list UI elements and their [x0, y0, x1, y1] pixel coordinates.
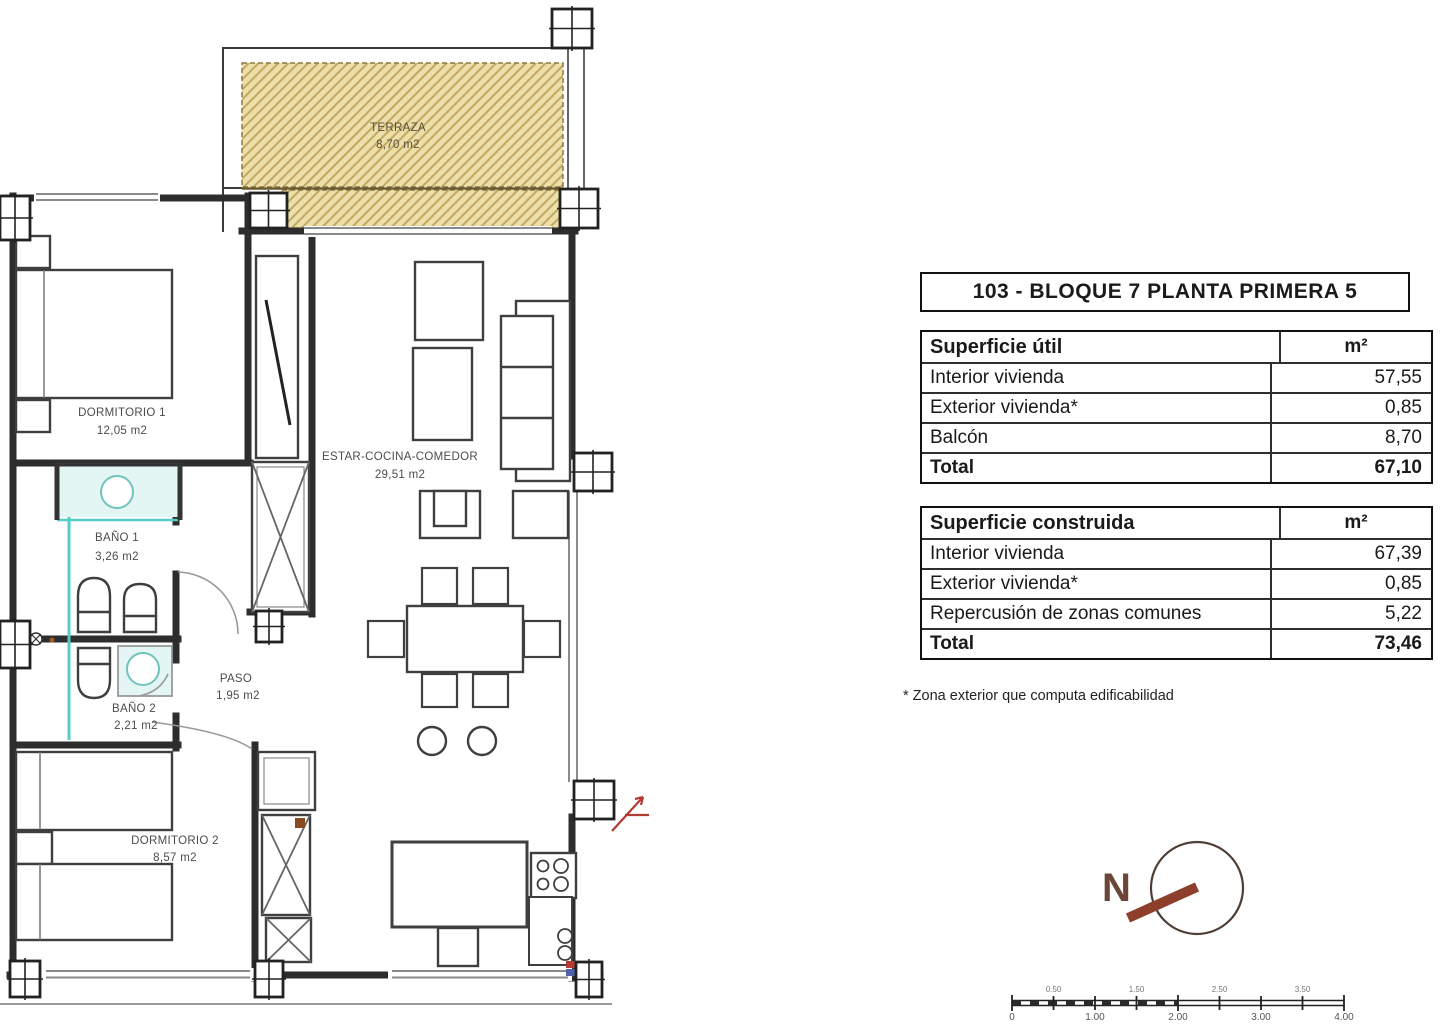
page: TERRAZA 8,70 m2 DORMITORIO 1 12,05 m2 BA…: [0, 0, 1440, 1024]
table-header-row: Superficie útil m²: [922, 332, 1431, 362]
meter-mark: [566, 969, 575, 976]
table-superficie-util: Superficie útil m² Interior vivienda 57,…: [920, 330, 1433, 484]
table-unit-header: m²: [1279, 508, 1431, 538]
room-area: 8,57 m2: [153, 852, 197, 864]
scale-label: 2.50: [1212, 985, 1228, 994]
north-arrow: N: [1102, 842, 1243, 934]
room-label: TERRAZA: [370, 122, 426, 134]
room-area: 29,51 m2: [375, 469, 425, 481]
table-total-row: Total 67,10: [922, 452, 1431, 482]
tv-unit: [415, 262, 483, 340]
table-row: Exterior vivienda* 0,85: [922, 392, 1431, 422]
bed: [16, 864, 172, 940]
table-unit-header: m²: [1279, 332, 1431, 362]
table-row: Repercusión de zonas comunes 5,22: [922, 598, 1431, 628]
shower: [57, 464, 180, 520]
room-label: DORMITORIO 1: [78, 407, 166, 419]
toilet: [78, 578, 110, 632]
plan-title: 103 - BLOQUE 7 PLANTA PRIMERA 5: [920, 272, 1410, 312]
table-row: Exterior vivienda* 0,85: [922, 568, 1431, 598]
row-label: Interior vivienda: [922, 540, 1270, 568]
table-row: Interior vivienda 57,55: [922, 362, 1431, 392]
column-icon: [571, 450, 615, 494]
total-value: 67,10: [1270, 454, 1431, 482]
room-label: PASO: [220, 673, 252, 685]
stove: [531, 853, 576, 898]
room-label: DORMITORIO 2: [131, 835, 219, 847]
nightstand: [16, 832, 52, 864]
armchair: [513, 491, 568, 538]
wardrobe: [258, 752, 315, 962]
total-label: Total: [922, 630, 1270, 658]
bed: [16, 270, 172, 398]
row-label: Interior vivienda: [922, 364, 1270, 392]
column-icon: [573, 959, 605, 1000]
row-label: Exterior vivienda*: [922, 570, 1270, 598]
row-label: Exterior vivienda*: [922, 394, 1270, 422]
row-value: 0,85: [1270, 570, 1431, 598]
scale-label: 2.00: [1168, 1012, 1188, 1023]
furniture: [16, 236, 576, 966]
total-label: Total: [922, 454, 1270, 482]
scale-label: 3.50: [1295, 985, 1311, 994]
row-label: Repercusión de zonas comunes: [922, 600, 1270, 628]
column-icon: [252, 958, 286, 1000]
closet: [252, 462, 309, 612]
row-value: 8,70: [1270, 424, 1431, 452]
room-area: 12,05 m2: [97, 425, 147, 437]
column-icon: [0, 618, 33, 671]
valve-icon: [30, 633, 55, 645]
column-icon: [7, 958, 43, 1000]
row-value: 67,39: [1270, 540, 1431, 568]
table-header-label: Superficie útil: [922, 332, 1279, 362]
electrical-symbol: [612, 797, 649, 831]
sink: [529, 897, 572, 965]
column-icon: [549, 6, 595, 51]
row-value: 5,22: [1270, 600, 1431, 628]
tall-cabinet: [256, 256, 298, 458]
column-icon: [557, 186, 601, 231]
stool: [418, 727, 496, 755]
coffee-table: [413, 348, 472, 440]
row-label: Balcón: [922, 424, 1270, 452]
column-icon: [247, 190, 290, 231]
north-label: N: [1102, 866, 1131, 910]
table-total-row: Total 73,46: [922, 628, 1431, 658]
row-value: 57,55: [1270, 364, 1431, 392]
shower: [118, 646, 172, 696]
total-value: 73,46: [1270, 630, 1431, 658]
scale-label: 4.00: [1334, 1012, 1354, 1023]
toilet: [78, 648, 110, 698]
scale-label: 0: [1009, 1012, 1015, 1023]
kitchen-counter: [392, 842, 527, 966]
sofa: [501, 301, 570, 481]
meter-mark: [566, 961, 575, 968]
detector-mark: [295, 818, 305, 828]
nightstand: [16, 400, 50, 432]
table-row: Balcón 8,70: [922, 422, 1431, 452]
dining-table: [407, 606, 523, 672]
room-label: ESTAR-COCINA-COMEDOR: [322, 451, 478, 463]
room-area: 1,95 m2: [216, 690, 260, 702]
footnote: * Zona exterior que computa edificabilid…: [903, 688, 1174, 704]
table-superficie-construida: Superficie construida m² Interior vivien…: [920, 506, 1433, 660]
column-icon: [0, 193, 33, 243]
bed: [16, 752, 172, 830]
table-row: Interior vivienda 67,39: [922, 538, 1431, 568]
row-value: 0,85: [1270, 394, 1431, 422]
scale-label: 1.50: [1129, 985, 1145, 994]
room-label: BAÑO 2: [112, 702, 156, 715]
table-header-label: Superficie construida: [922, 508, 1279, 538]
room-area: 2,21 m2: [114, 720, 158, 732]
room-area: 8,70 m2: [376, 139, 420, 151]
room-label: BAÑO 1: [95, 531, 139, 544]
table-header-row: Superficie construida m²: [922, 508, 1431, 538]
column-icon: [571, 778, 617, 822]
scale-bar: 0.50 1.50 2.50 3.50 0 1.00 2.00 3.00 4.0…: [1009, 985, 1354, 1023]
room-area: 3,26 m2: [95, 551, 139, 563]
scale-label: 0.50: [1046, 985, 1062, 994]
armchair: [420, 491, 480, 538]
scale-label: 3.00: [1251, 1012, 1271, 1023]
bidet: [124, 584, 156, 632]
column-icon: [253, 608, 285, 645]
scale-label: 1.00: [1085, 1012, 1105, 1023]
